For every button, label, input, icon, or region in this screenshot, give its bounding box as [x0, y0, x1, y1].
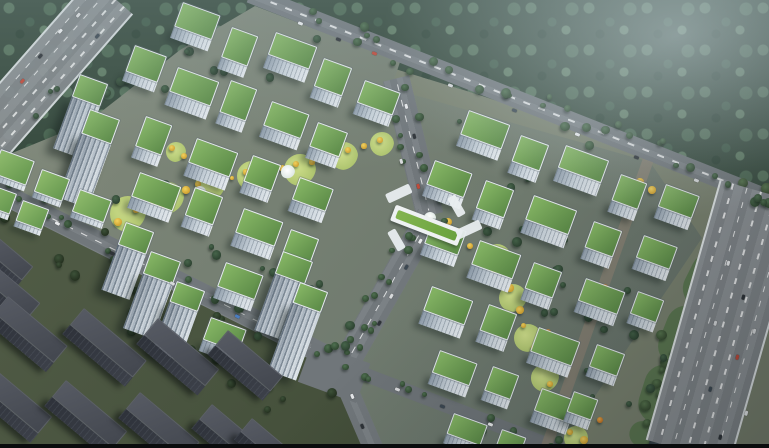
bottom-letterbox	[0, 444, 769, 448]
shadow-vignette	[0, 0, 769, 448]
aerial-rendering	[0, 0, 769, 448]
